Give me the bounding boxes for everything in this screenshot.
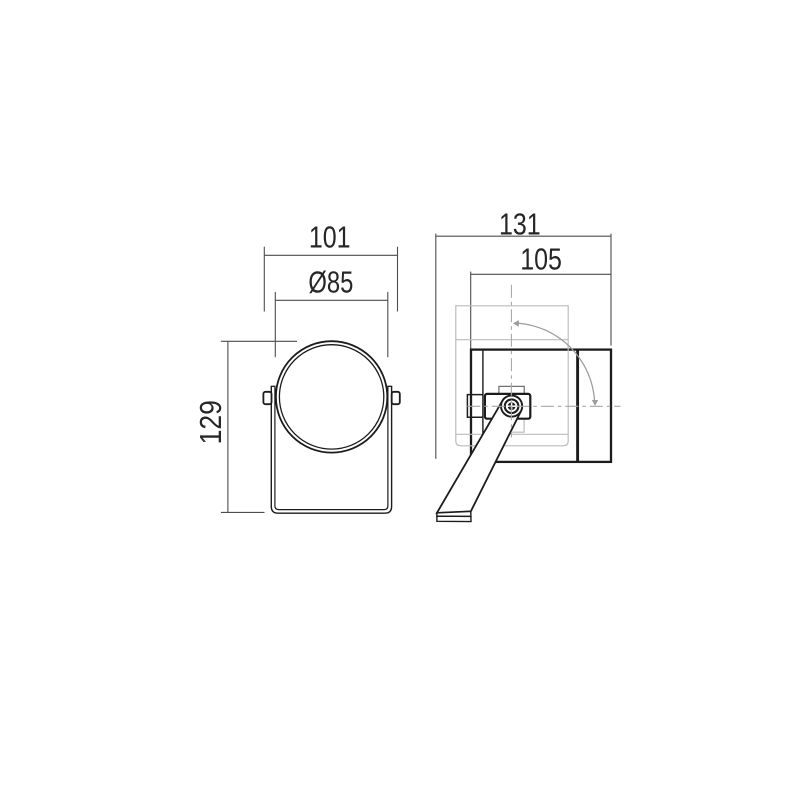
svg-text:131: 131 bbox=[499, 207, 541, 241]
svg-text:129: 129 bbox=[194, 400, 228, 444]
svg-text:101: 101 bbox=[309, 220, 351, 254]
svg-text:Ø85: Ø85 bbox=[308, 265, 353, 300]
svg-text:105: 105 bbox=[520, 242, 562, 276]
